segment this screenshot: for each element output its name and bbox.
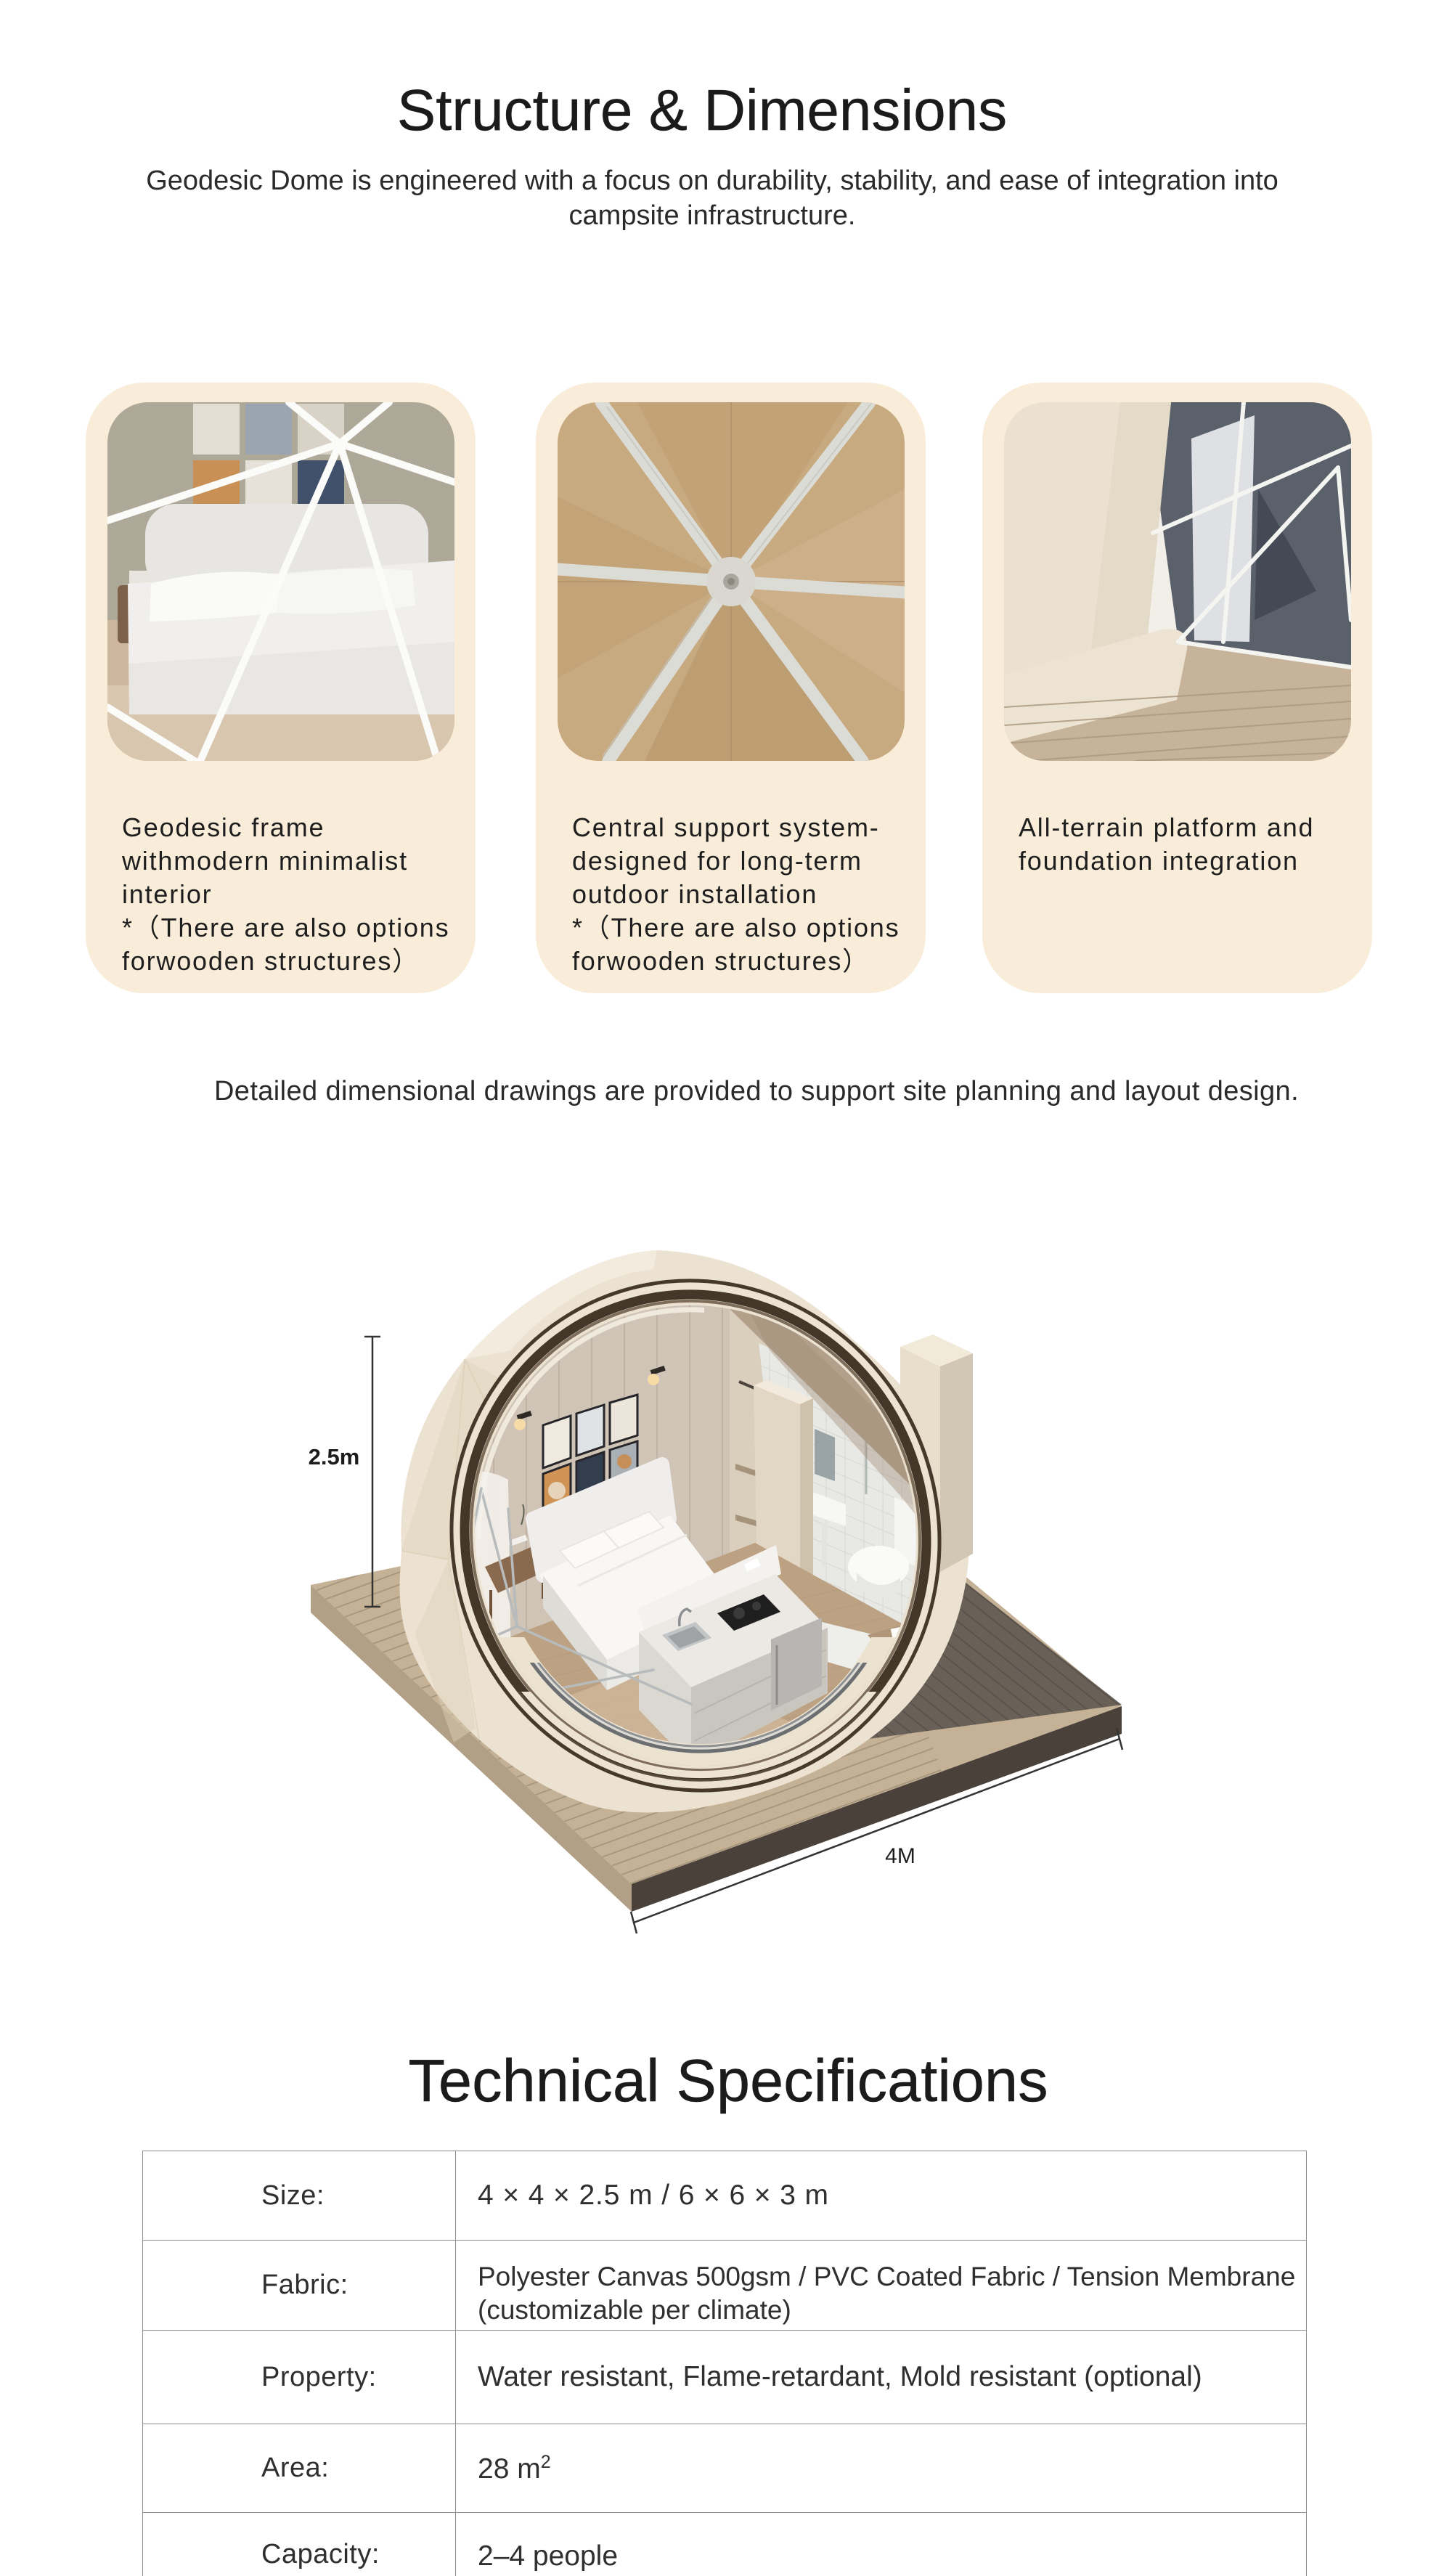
svg-text:2.5m: 2.5m	[309, 1444, 360, 1470]
svg-text:4M: 4M	[885, 1844, 915, 1868]
